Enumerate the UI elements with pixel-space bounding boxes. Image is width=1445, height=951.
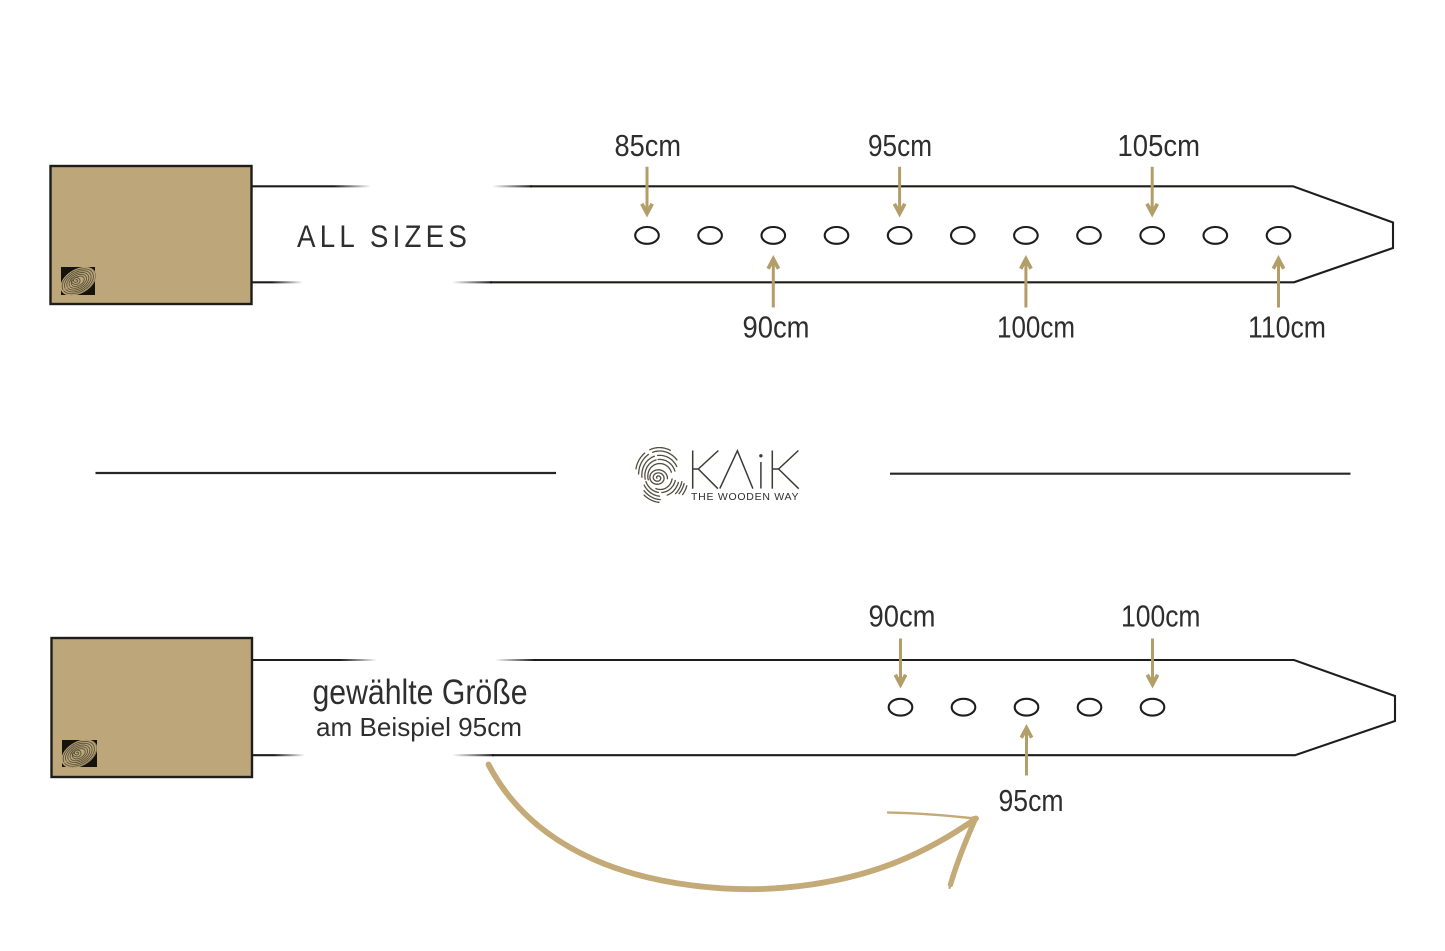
svg-text:am Beispiel 95cm: am Beispiel 95cm — [316, 712, 522, 742]
svg-text:95cm: 95cm — [999, 783, 1064, 818]
svg-text:90cm: 90cm — [869, 599, 936, 634]
svg-text:THE WOODEN WAY: THE WOODEN WAY — [691, 491, 799, 503]
svg-text:95cm: 95cm — [868, 128, 932, 163]
svg-text:100cm: 100cm — [1121, 599, 1201, 634]
svg-text:90cm: 90cm — [743, 310, 810, 345]
svg-text:gewählte Größe: gewählte Größe — [313, 672, 528, 712]
svg-text:110cm: 110cm — [1248, 310, 1326, 345]
svg-text:105cm: 105cm — [1118, 128, 1201, 163]
svg-text:85cm: 85cm — [615, 128, 682, 163]
svg-text:100cm: 100cm — [997, 310, 1075, 345]
svg-text:ALL SIZES: ALL SIZES — [297, 219, 467, 254]
